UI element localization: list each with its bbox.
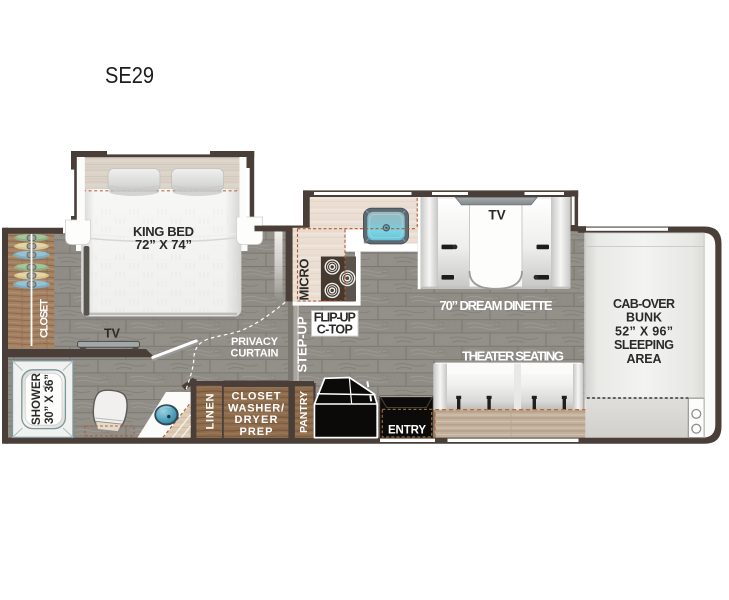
- svg-text:DRYER: DRYER: [235, 414, 278, 426]
- svg-text:TV: TV: [488, 208, 505, 223]
- svg-text:CURTAIN: CURTAIN: [231, 347, 279, 359]
- svg-text:WASHER/: WASHER/: [228, 402, 284, 414]
- svg-text:CAB-OVER: CAB-OVER: [613, 297, 675, 311]
- svg-text:CLOSET: CLOSET: [232, 391, 281, 403]
- svg-text:AREA: AREA: [627, 352, 662, 366]
- svg-text:SE29: SE29: [105, 62, 154, 88]
- svg-text:MICRO: MICRO: [297, 259, 312, 301]
- svg-text:STEP-UP: STEP-UP: [294, 316, 309, 372]
- svg-text:TV: TV: [104, 326, 121, 340]
- svg-text:LINEN: LINEN: [204, 393, 216, 429]
- svg-text:C-TOP: C-TOP: [317, 323, 353, 337]
- svg-text:CLOSET: CLOSET: [38, 299, 50, 338]
- svg-text:SLEEPING: SLEEPING: [614, 338, 674, 352]
- svg-text:ENTRY: ENTRY: [388, 424, 426, 436]
- svg-text:THEATER SEATING: THEATER SEATING: [462, 348, 564, 363]
- svg-text:52” X 96”: 52” X 96”: [615, 324, 673, 338]
- svg-text:PREP: PREP: [240, 426, 273, 438]
- svg-text:SHOWER: SHOWER: [31, 372, 43, 425]
- svg-text:PRIVACY: PRIVACY: [231, 336, 279, 348]
- svg-text:30” X 36”: 30” X 36”: [44, 374, 56, 424]
- svg-text:PANTRY: PANTRY: [298, 391, 310, 433]
- svg-text:70” DREAM DINETTE: 70” DREAM DINETTE: [440, 298, 553, 313]
- svg-text:BUNK: BUNK: [626, 311, 662, 325]
- svg-text:72” X 74”: 72” X 74”: [135, 237, 192, 252]
